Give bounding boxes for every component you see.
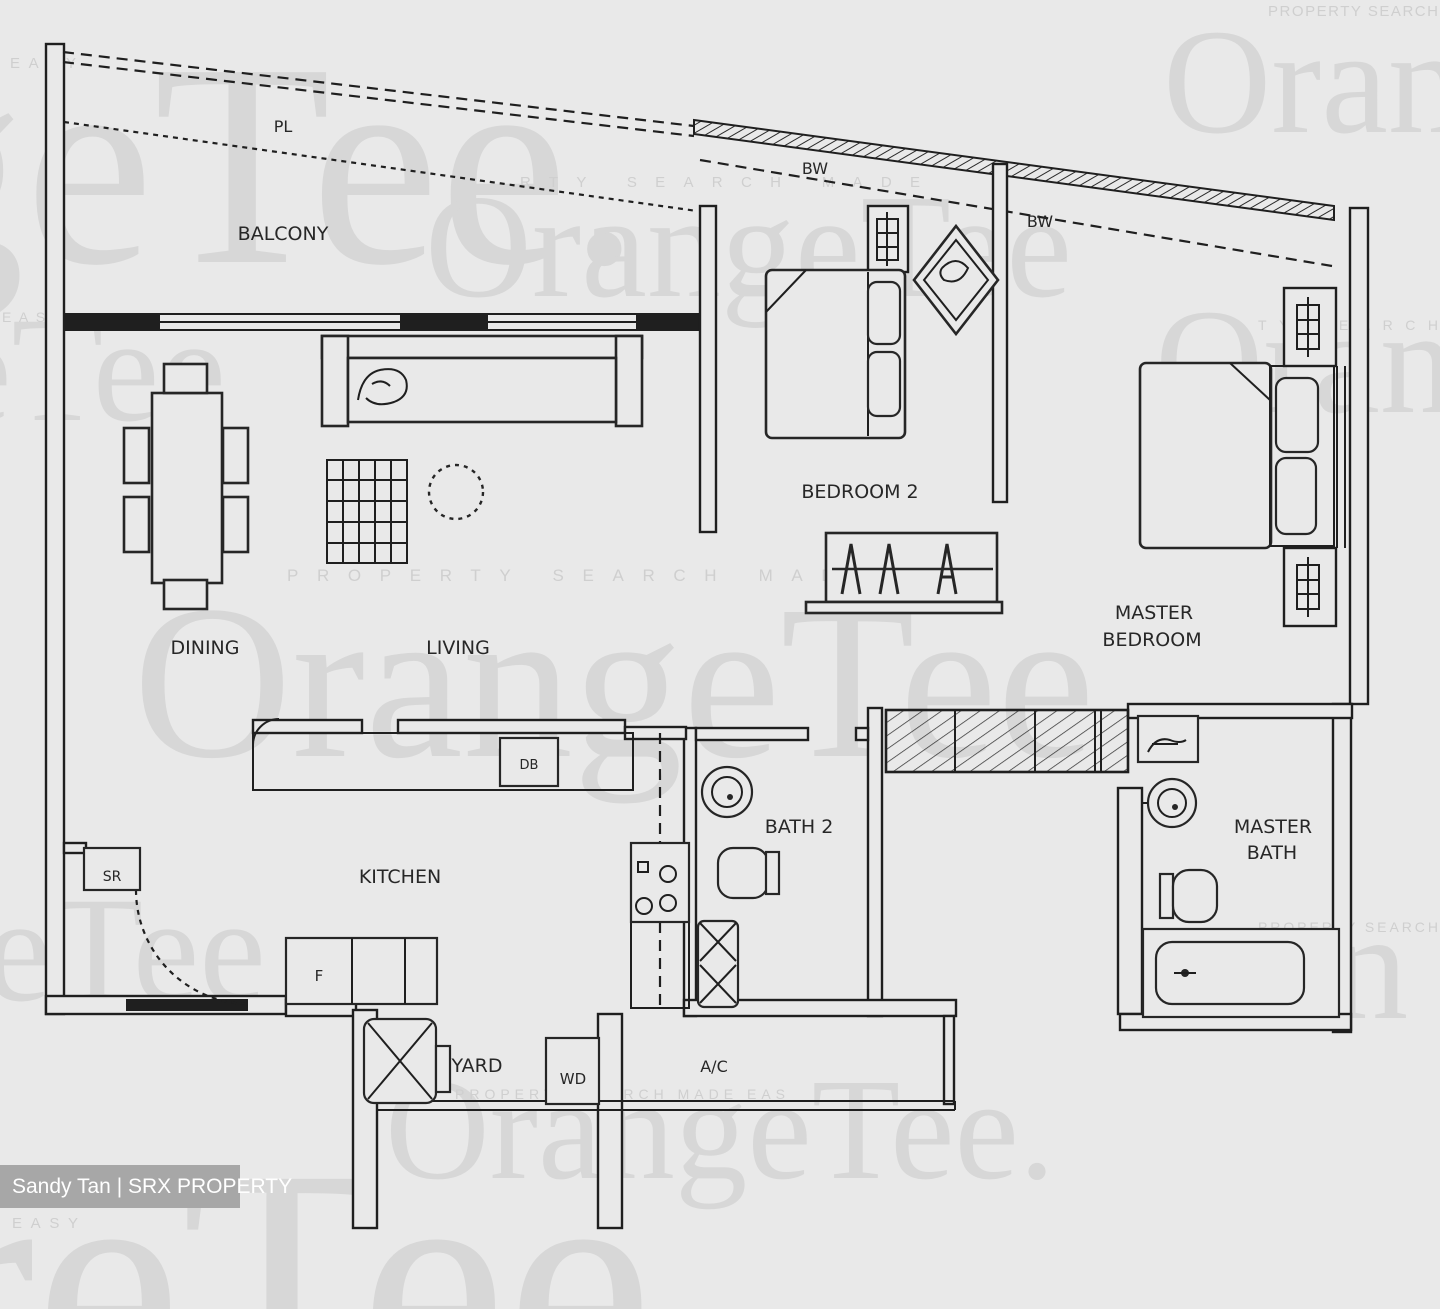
- wall-right-outer-upper: [1350, 208, 1368, 704]
- wall-kitchen-top-a: [253, 720, 362, 733]
- wall-bath2-top-a: [696, 728, 808, 740]
- masterbath-basin: [1142, 779, 1196, 827]
- sofa: [322, 336, 642, 426]
- wall-kitchen-top-b: [398, 720, 625, 733]
- room-label-bedroom2: BEDROOM 2: [801, 481, 918, 503]
- wall-bedroom2-master: [993, 164, 1007, 502]
- room-label-dining: DINING: [171, 637, 240, 659]
- wall-ledge-cap: [944, 1016, 954, 1104]
- label-bay-window-left: BW: [802, 159, 828, 178]
- room-label-master-bedroom-1: MASTER: [1115, 602, 1193, 624]
- wall-bath2-right: [868, 708, 882, 1016]
- label-fridge: F: [315, 967, 324, 985]
- wall-masterbath-left: [1118, 788, 1142, 1014]
- watermark-tagline: RTY SEARCH MADE: [520, 174, 920, 191]
- master-bed: [1140, 363, 1334, 548]
- room-label-master-bath-1: MASTER: [1234, 816, 1312, 838]
- coffee-table: [429, 465, 483, 519]
- label-store-room: SR: [103, 869, 122, 885]
- masterbath-vanity: [1138, 716, 1198, 762]
- master-wardrobe: [886, 710, 1128, 772]
- wall-corridor-top: [625, 727, 686, 739]
- room-label-balcony: BALCONY: [238, 223, 329, 245]
- stove: [631, 843, 689, 922]
- label-washer-dryer: WD: [560, 1070, 586, 1088]
- agent-badge: Sandy Tan | SRX PROPERTY: [0, 1165, 240, 1208]
- fridge-counter: [286, 938, 437, 1004]
- room-label-master-bath-2: BATH: [1247, 842, 1297, 864]
- bay-window-master-upper: [1284, 288, 1336, 366]
- rug: [327, 460, 407, 563]
- bedroom2-bed: [766, 270, 905, 438]
- entry-door-threshold: [126, 999, 248, 1011]
- watermark-fragment: Oran: [1163, 0, 1440, 165]
- bedroom2-wardrobe: [806, 533, 1002, 613]
- wall-living-bedroom2: [700, 206, 716, 532]
- wall-bath2-top-b: [856, 728, 868, 740]
- wall-sr-stub: [64, 843, 86, 853]
- bath2-toilet: [718, 848, 779, 898]
- room-label-living: LIVING: [426, 637, 490, 659]
- label-bay-window-right: BW: [1027, 212, 1053, 231]
- masterbath-bathtub: [1143, 929, 1339, 1017]
- bath2-basin: [702, 767, 752, 817]
- masterbath-toilet: [1160, 870, 1217, 922]
- label-property-line: PL: [274, 117, 293, 136]
- balcony-wall-solid: [636, 314, 700, 330]
- room-label-yard: YARD: [451, 1055, 503, 1077]
- room-label-master-bedroom-2: BEDROOM: [1102, 629, 1201, 651]
- room-label-kitchen: KITCHEN: [359, 866, 441, 888]
- yard-post-right: [598, 1014, 622, 1228]
- balcony-wall-solid: [64, 314, 160, 330]
- wall-left-outer: [46, 44, 64, 1014]
- room-label-bath2: BATH 2: [765, 816, 834, 838]
- floorplan-page: geTee. OrangeTee Oran eTee Oran OrangeTe…: [0, 0, 1440, 1309]
- bay-window-master-lower: [1284, 548, 1336, 626]
- agent-badge-text: Sandy Tan | SRX PROPERTY: [12, 1175, 292, 1198]
- yard-shaft: [364, 1019, 450, 1103]
- label-aircon-ledge: A/C: [700, 1057, 728, 1076]
- label-distribution-board: DB: [520, 758, 539, 773]
- bath2-duct: [698, 921, 738, 1007]
- balcony-wall-solid: [400, 314, 488, 330]
- floorplan-drawing: geTee. OrangeTee Oran eTee Oran OrangeTe…: [0, 0, 1440, 1309]
- watermark-tagline: PROPERTY SEARCH: [1268, 3, 1438, 20]
